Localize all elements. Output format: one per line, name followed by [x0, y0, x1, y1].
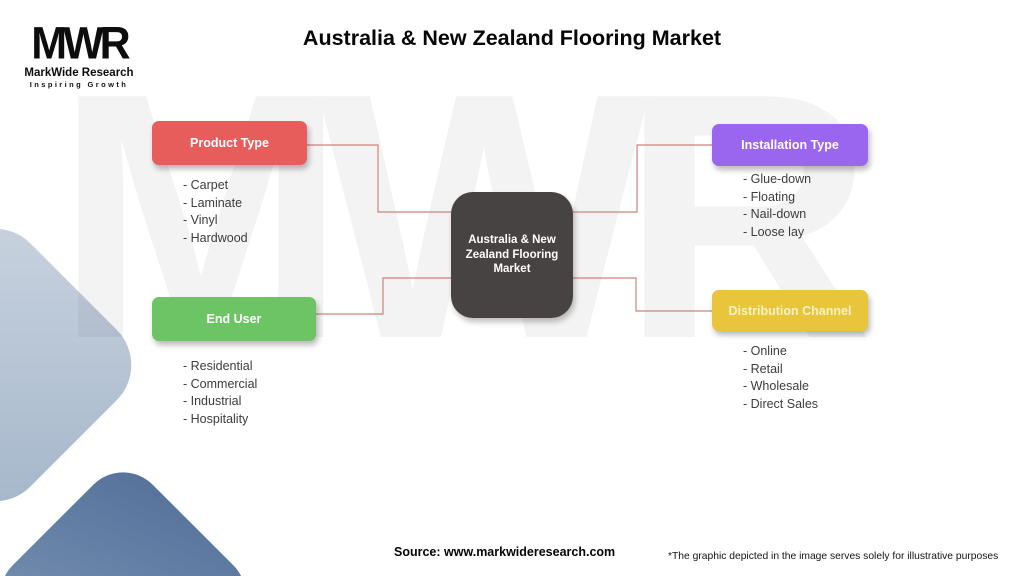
list-item: - Nail-down: [743, 206, 811, 224]
category-header-installation-type: Installation Type: [712, 124, 868, 166]
page-title: Australia & New Zealand Flooring Market: [0, 26, 1024, 51]
category-header-product-type: Product Type: [152, 121, 307, 165]
infographic-canvas: MWR MWR MarkWide Research Inspiring Grow…: [0, 0, 1024, 576]
category-header-distribution-channel: Distribution Channel: [712, 290, 868, 331]
list-item: - Carpet: [183, 177, 248, 195]
list-item: - Hospitality: [183, 411, 257, 429]
list-item: - Residential: [183, 358, 257, 376]
list-item: - Floating: [743, 189, 811, 207]
category-items-end-user: - Residential- Commercial- Industrial- H…: [183, 358, 257, 428]
list-item: - Online: [743, 343, 818, 361]
source-text: Source: www.markwideresearch.com: [394, 545, 615, 559]
category-items-installation-type: - Glue-down- Floating- Nail-down- Loose …: [743, 171, 811, 241]
list-item: - Vinyl: [183, 212, 248, 230]
center-node-market: Australia & New Zealand Flooring Market: [451, 192, 573, 318]
category-items-product-type: - Carpet- Laminate- Vinyl- Hardwood: [183, 177, 248, 247]
category-items-distribution-channel: - Online- Retail- Wholesale- Direct Sale…: [743, 343, 818, 413]
list-item: - Laminate: [183, 195, 248, 213]
list-item: - Direct Sales: [743, 396, 818, 414]
list-item: - Commercial: [183, 376, 257, 394]
list-item: - Glue-down: [743, 171, 811, 189]
list-item: - Wholesale: [743, 378, 818, 396]
disclaimer-text: *The graphic depicted in the image serve…: [668, 551, 998, 562]
list-item: - Loose lay: [743, 224, 811, 242]
list-item: - Hardwood: [183, 230, 248, 248]
list-item: - Industrial: [183, 393, 257, 411]
category-header-end-user: End User: [152, 297, 316, 341]
logo-tagline: Inspiring Growth: [20, 80, 138, 89]
list-item: - Retail: [743, 361, 818, 379]
